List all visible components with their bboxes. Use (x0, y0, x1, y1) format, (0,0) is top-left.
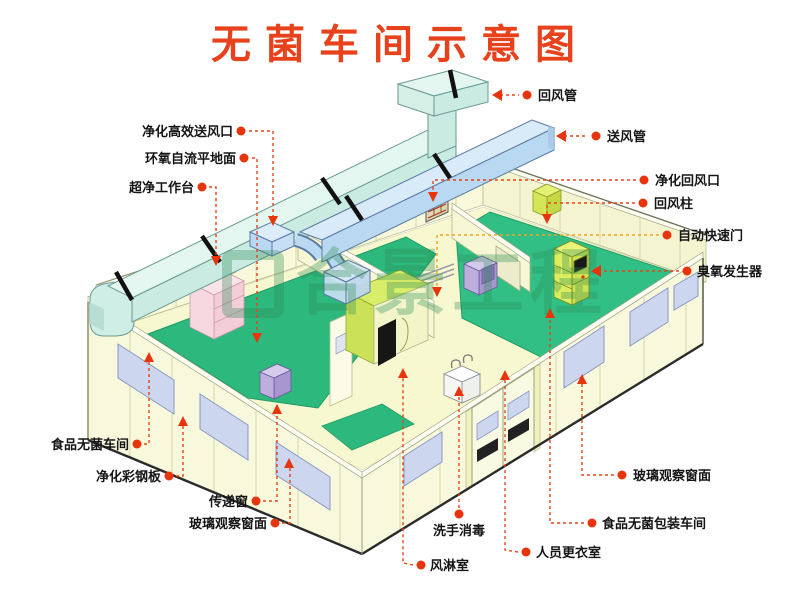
return-air-column (533, 184, 561, 217)
page-title: 无菌车间示意图 (0, 12, 800, 70)
pass-box-interior (464, 256, 497, 295)
schematic-page: 合景工程 (0, 0, 800, 607)
ozone-generator (554, 241, 589, 305)
cleanroom-isometric-drawing (0, 0, 800, 607)
